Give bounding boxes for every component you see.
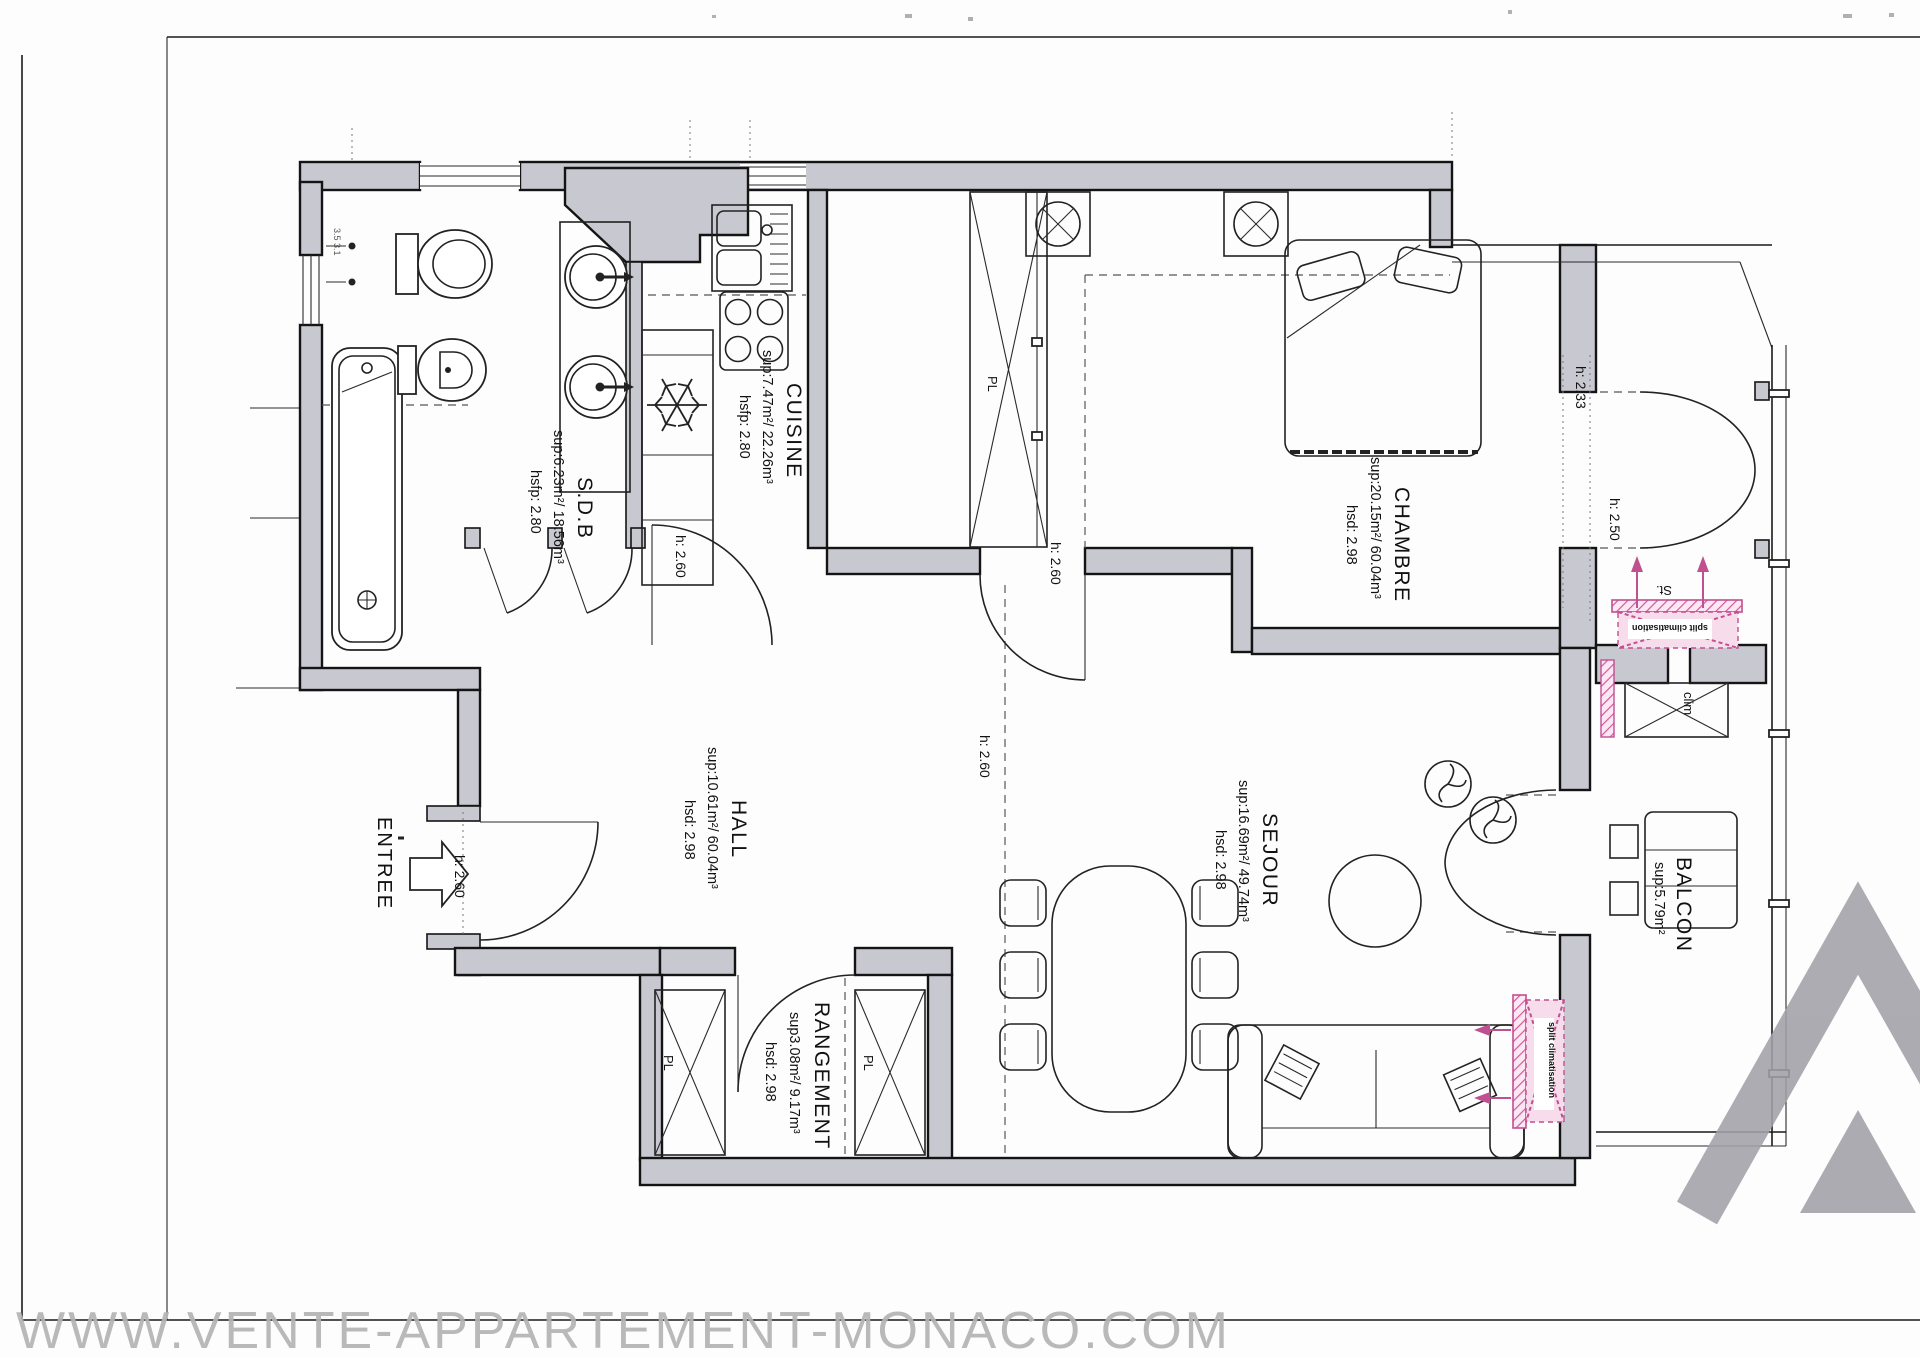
chevron-watermark bbox=[1697, 928, 1920, 1213]
closet-label-rangement-left: PL bbox=[661, 1055, 676, 1071]
room-hall: HALL sup:10.61m²/ 60.04m³ hsd: 2.98 bbox=[681, 747, 750, 889]
sofa bbox=[1228, 1025, 1524, 1158]
sdb-dims: sup:6.23m²/ 18.56m³ bbox=[550, 430, 566, 564]
sofa-pillow-left bbox=[1265, 1045, 1319, 1099]
sdb-name: S.D.B bbox=[573, 477, 596, 539]
toilet bbox=[326, 230, 492, 298]
room-chambre: CHAMBRE sup:20.15m²/ 60.04m³ hsd: 2.98 bbox=[1343, 457, 1413, 603]
balcony-height-top: h: 2.33 bbox=[1573, 366, 1589, 409]
rangement-name: RANGEMENT bbox=[810, 1002, 833, 1150]
rug bbox=[1329, 855, 1421, 947]
side-table-fans bbox=[1425, 761, 1516, 843]
dining-chairs bbox=[1000, 880, 1238, 1070]
clim-label: clim bbox=[1681, 692, 1696, 715]
entrance-door bbox=[480, 822, 598, 940]
chambre-name: CHAMBRE bbox=[1390, 487, 1413, 603]
window-sdb-left bbox=[303, 255, 319, 325]
vanity-basins bbox=[560, 222, 634, 492]
cooktop bbox=[720, 292, 788, 370]
rangement-height: hsd: 2.98 bbox=[762, 1042, 778, 1102]
sdb-height: hsfp: 2.80 bbox=[527, 470, 543, 534]
floor-plan-page: split climatisation St. clim split clima… bbox=[0, 0, 1920, 1357]
dimension-stubs bbox=[236, 112, 1452, 688]
bidet bbox=[398, 339, 486, 401]
chambre-height: hsd: 2.98 bbox=[1343, 505, 1359, 565]
closet-label-corridor: PL bbox=[985, 376, 1000, 392]
bathtub bbox=[332, 348, 402, 650]
sejour-dims: sup:16.69m²/ 49.74m³ bbox=[1235, 780, 1251, 922]
balcony-height-mid: h: 2.50 bbox=[1607, 498, 1623, 541]
wall-dimension-marks: 3.5 3.1 bbox=[332, 228, 342, 256]
bedroom-furniture bbox=[1026, 192, 1481, 456]
snowflake-icon bbox=[647, 379, 707, 431]
window-sdb-top bbox=[420, 163, 520, 189]
room-sdb: S.D.B sup:6.23m²/ 18.56m³ hsfp: 2.80 bbox=[527, 430, 596, 564]
hall-name: HALL bbox=[727, 800, 750, 859]
rangement-dims: sup3.08m²/ 9.17m³ bbox=[786, 1012, 802, 1134]
door-height-sejour: h: 2.60 bbox=[977, 735, 993, 778]
door-height-chambre: h: 2.60 bbox=[1048, 542, 1064, 585]
split-clim-chambre-label: split climatisation bbox=[1632, 623, 1708, 633]
bathroom-fixtures bbox=[326, 222, 634, 650]
chambre-dims: sup:20.15m²/ 60.04m³ bbox=[1367, 457, 1383, 599]
closet-rangement-left bbox=[655, 990, 725, 1155]
balcony-railing bbox=[1452, 245, 1789, 1146]
nightstand-right bbox=[1224, 192, 1288, 256]
room-sejour: SEJOUR sup:16.69m²/ 49.74m³ hsd: 2.98 bbox=[1212, 780, 1281, 922]
duct-label: St. bbox=[1656, 583, 1672, 598]
closet-corridor bbox=[970, 192, 1047, 547]
split-clim-sejour: split climatisation bbox=[1474, 995, 1564, 1128]
floor-plan-drawing: split climatisation St. clim split clima… bbox=[0, 0, 1920, 1357]
door-height-entrance: h: 2.60 bbox=[452, 855, 468, 898]
sejour-balcony-doors bbox=[1445, 790, 1556, 935]
dining-table bbox=[1052, 866, 1186, 1112]
bed bbox=[1285, 240, 1481, 456]
split-clim-chambre: split climatisation St. bbox=[1612, 556, 1742, 648]
cuisine-name: CUISINE bbox=[782, 383, 805, 479]
door-height-kitchen: h: 2.60 bbox=[673, 535, 689, 578]
entree-label: ENTREE bbox=[373, 817, 395, 910]
room-rangement: RANGEMENT sup3.08m²/ 9.17m³ hsd: 2.98 bbox=[762, 1002, 833, 1150]
closet-label-rangement-right: PL bbox=[861, 1055, 876, 1071]
balcon-name: BALCON bbox=[1672, 857, 1695, 952]
site-watermark: WWW.VENTE-APPARTEMENT-MONACO.COM bbox=[16, 1302, 1231, 1357]
hall-height: hsd: 2.98 bbox=[681, 800, 697, 860]
chambre-door bbox=[980, 574, 1085, 680]
room-balcon: BALCON sup:5.79m² bbox=[1651, 857, 1695, 952]
sdb-door bbox=[484, 548, 552, 613]
split-clim-sejour-label: split climatisation bbox=[1547, 1022, 1557, 1098]
sejour-height: hsd: 2.98 bbox=[1212, 830, 1228, 890]
scan-specks bbox=[712, 10, 1894, 21]
sofa-pillow-right bbox=[1444, 1059, 1497, 1112]
window-kitchen-top bbox=[740, 164, 806, 188]
cuisine-dims: sup:7.47m²/ 22.26m³ bbox=[759, 350, 775, 484]
cuisine-height: hsfp: 2.80 bbox=[736, 395, 752, 459]
closet-rangement-right bbox=[855, 990, 925, 1155]
wc-door bbox=[564, 548, 632, 613]
balcon-dims: sup:5.79m² bbox=[1651, 862, 1667, 935]
hall-dims: sup:10.61m²/ 60.04m³ bbox=[704, 747, 720, 889]
sejour-name: SEJOUR bbox=[1258, 813, 1281, 907]
